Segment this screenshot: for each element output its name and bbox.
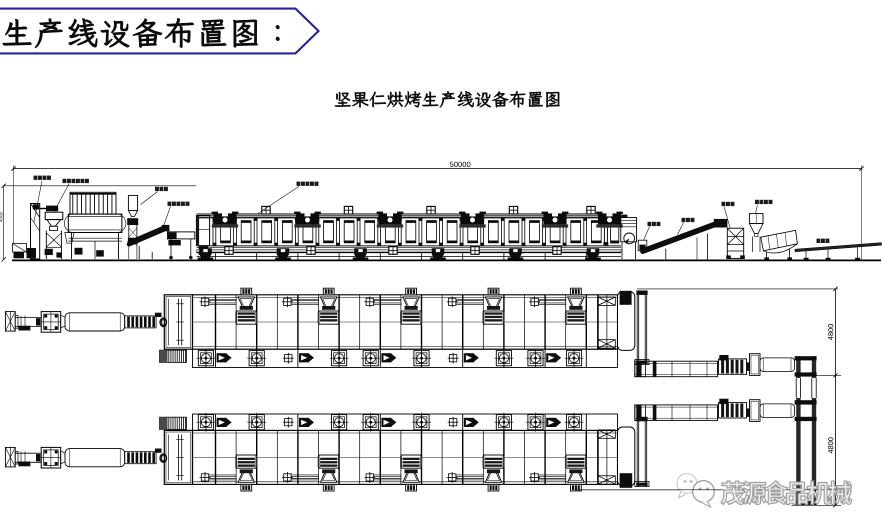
svg-text:4500: 4500: [0, 211, 4, 222]
